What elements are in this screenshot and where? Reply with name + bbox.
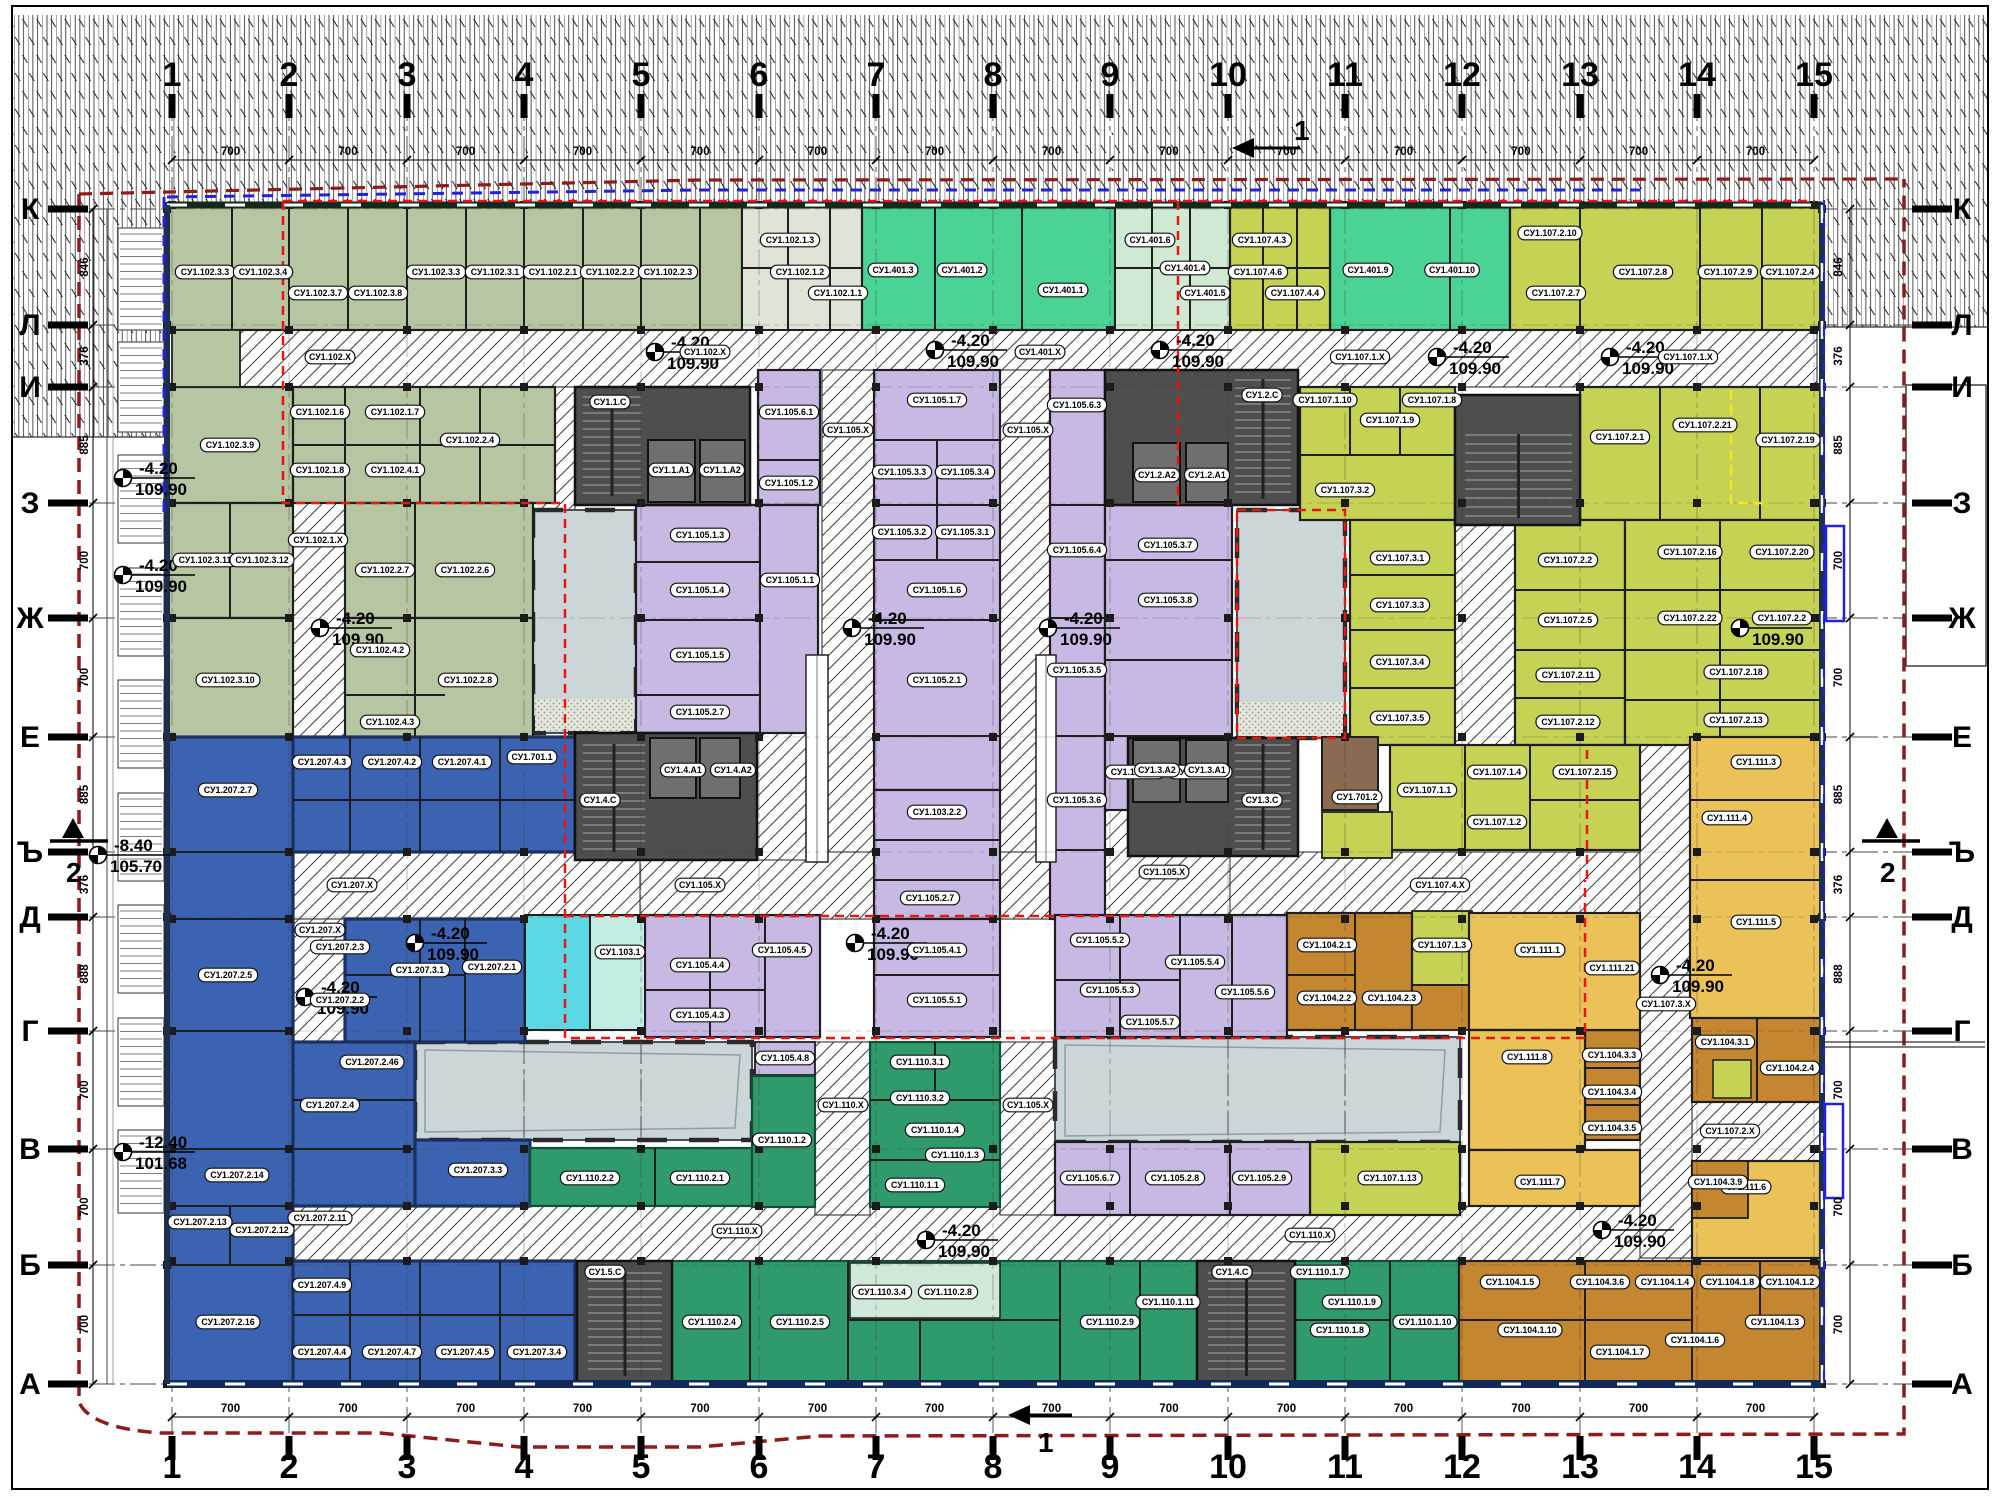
svg-text:СУ1.105.Х: СУ1.105.Х [679, 880, 721, 890]
svg-text:1: 1 [1294, 115, 1310, 146]
svg-text:СУ1.105.4.3: СУ1.105.4.3 [676, 1010, 725, 1020]
svg-text:-12.40: -12.40 [139, 1133, 187, 1152]
svg-text:8: 8 [984, 56, 1003, 94]
svg-text:СУ1.110.2.9: СУ1.110.2.9 [1086, 1317, 1134, 1327]
svg-text:СУ1.110.Х: СУ1.110.Х [822, 1100, 864, 1110]
svg-text:13: 13 [1561, 56, 1599, 94]
svg-text:Д: Д [1951, 901, 1972, 934]
svg-text:СУ1.102.3.11: СУ1.102.3.11 [179, 555, 232, 565]
svg-text:СУ1.107.2.8: СУ1.107.2.8 [1619, 267, 1668, 277]
svg-text:СУ1.105.Х: СУ1.105.Х [1007, 425, 1049, 435]
svg-text:И: И [1951, 371, 1973, 404]
svg-text:СУ1.102.3.1: СУ1.102.3.1 [471, 267, 520, 277]
svg-text:СУ1.1.А1: СУ1.1.А1 [652, 465, 690, 475]
svg-text:109.90: 109.90 [135, 480, 187, 499]
svg-text:СУ1.102.1.7: СУ1.102.1.7 [371, 407, 420, 417]
svg-text:СУ1.107.2.5: СУ1.107.2.5 [1544, 615, 1593, 625]
svg-text:700: 700 [808, 146, 827, 158]
svg-text:СУ1.105.2.8: СУ1.105.2.8 [1151, 1173, 1200, 1183]
svg-text:СУ1.2.А2: СУ1.2.А2 [1138, 470, 1176, 480]
svg-text:СУ1.105.5.4: СУ1.105.5.4 [1171, 957, 1220, 967]
svg-text:14: 14 [1678, 56, 1716, 94]
svg-text:700: 700 [1833, 1080, 1845, 1099]
svg-text:СУ1.207.2.46: СУ1.207.2.46 [345, 1057, 398, 1067]
svg-text:СУ1.207.2.3: СУ1.207.2.3 [316, 942, 365, 952]
svg-text:СУ1.102.4.2: СУ1.102.4.2 [356, 645, 405, 655]
svg-text:СУ1.102.1.8: СУ1.102.1.8 [296, 465, 345, 475]
svg-text:СУ1.207.4.4: СУ1.207.4.4 [298, 1347, 347, 1357]
svg-text:-4.20: -4.20 [942, 1221, 981, 1240]
svg-text:12: 12 [1443, 56, 1481, 94]
svg-text:СУ1.102.3.9: СУ1.102.3.9 [206, 440, 255, 450]
svg-text:СУ1.102.Х: СУ1.102.Х [684, 347, 726, 357]
svg-text:СУ1.107.2.2: СУ1.107.2.2 [1544, 555, 1593, 565]
svg-text:СУ1.110.Х: СУ1.110.Х [1289, 1230, 1331, 1240]
svg-text:700: 700 [79, 1315, 91, 1334]
svg-text:СУ1.107.3.1: СУ1.107.3.1 [1376, 553, 1425, 563]
svg-text:СУ1.107.2.1: СУ1.107.2.1 [1596, 432, 1645, 442]
svg-text:СУ1.110.2.8: СУ1.110.2.8 [924, 1287, 972, 1297]
svg-text:СУ1.401.6: СУ1.401.6 [1129, 235, 1170, 245]
svg-text:Б: Б [19, 1249, 41, 1282]
svg-text:СУ1.105.3.1: СУ1.105.3.1 [941, 527, 990, 537]
svg-text:СУ1.107.3.3: СУ1.107.3.3 [1376, 600, 1425, 610]
svg-text:СУ1.102.2.8: СУ1.102.2.8 [444, 675, 493, 685]
svg-text:СУ1.107.2.11: СУ1.107.2.11 [1542, 670, 1595, 680]
svg-text:СУ1.102.3.3: СУ1.102.3.3 [412, 267, 461, 277]
svg-text:846: 846 [1833, 257, 1845, 276]
svg-text:СУ1.207.3.4: СУ1.207.3.4 [513, 1347, 562, 1357]
svg-text:СУ1.105.6.3: СУ1.105.6.3 [1053, 400, 1102, 410]
svg-text:11: 11 [1327, 56, 1363, 94]
svg-text:СУ1.104.1.8: СУ1.104.1.8 [1706, 1277, 1755, 1287]
svg-text:15: 15 [1795, 56, 1833, 94]
svg-text:СУ1.110.1.4: СУ1.110.1.4 [911, 1125, 959, 1135]
svg-text:СУ1.107.3.Х: СУ1.107.3.Х [1641, 999, 1691, 1009]
svg-text:СУ1.102.3.3: СУ1.102.3.3 [181, 267, 230, 277]
svg-text:700: 700 [1159, 146, 1178, 158]
svg-text:СУ1.110.3.4: СУ1.110.3.4 [858, 1287, 906, 1297]
svg-text:2: 2 [66, 857, 82, 888]
svg-text:СУ1.107.1.Х: СУ1.107.1.Х [1663, 352, 1713, 362]
svg-text:700: 700 [79, 668, 91, 687]
svg-text:700: 700 [79, 1197, 91, 1216]
svg-text:СУ1.107.1.1: СУ1.107.1.1 [1403, 785, 1452, 795]
svg-text:700: 700 [1394, 146, 1413, 158]
svg-text:СУ1.104.1.7: СУ1.104.1.7 [1596, 1347, 1645, 1357]
svg-text:СУ1.102.1.2: СУ1.102.1.2 [776, 267, 825, 277]
svg-text:СУ1.102.3.10: СУ1.102.3.10 [201, 675, 254, 685]
svg-text:СУ1.107.2.18: СУ1.107.2.18 [1709, 667, 1762, 677]
svg-text:СУ1.107.4.6: СУ1.107.4.6 [1234, 267, 1283, 277]
svg-text:Д: Д [19, 901, 40, 934]
svg-text:376: 376 [1833, 875, 1845, 894]
svg-text:СУ1.207.4.5: СУ1.207.4.5 [441, 1347, 490, 1357]
svg-text:888: 888 [1833, 964, 1845, 984]
svg-text:109.90: 109.90 [1060, 630, 1112, 649]
svg-text:СУ1.110.2.5: СУ1.110.2.5 [776, 1317, 824, 1327]
svg-text:СУ1.105.5.3: СУ1.105.5.3 [1086, 985, 1135, 995]
svg-text:СУ1.107.2.20: СУ1.107.2.20 [1755, 547, 1808, 557]
svg-text:СУ1.105.5.7: СУ1.105.5.7 [1126, 1017, 1175, 1027]
svg-text:СУ1.110.1.1: СУ1.110.1.1 [891, 1180, 939, 1190]
svg-text:СУ1.105.3.8: СУ1.105.3.8 [1144, 595, 1193, 605]
svg-text:СУ1.104.3.9: СУ1.104.3.9 [1694, 1177, 1743, 1187]
svg-text:СУ1.207.4.1: СУ1.207.4.1 [438, 757, 487, 767]
svg-text:376: 376 [79, 346, 91, 365]
svg-text:СУ1.207.2.16: СУ1.207.2.16 [201, 1317, 254, 1327]
svg-text:СУ1.102.1.1: СУ1.102.1.1 [814, 288, 863, 298]
svg-text:СУ1.104.1.6: СУ1.104.1.6 [1671, 1335, 1720, 1345]
svg-text:СУ1.105.6.4: СУ1.105.6.4 [1053, 545, 1102, 555]
svg-text:СУ1.105.3.2: СУ1.105.3.2 [878, 527, 927, 537]
svg-text:СУ1.105.3.6: СУ1.105.3.6 [1053, 795, 1102, 805]
svg-text:10: 10 [1209, 56, 1247, 94]
svg-text:СУ1.110.1.3: СУ1.110.1.3 [931, 1150, 979, 1160]
svg-text:СУ1.105.1.1: СУ1.105.1.1 [766, 575, 815, 585]
svg-text:СУ1.110.2.1: СУ1.110.2.1 [676, 1173, 724, 1183]
svg-text:700: 700 [1042, 1403, 1061, 1415]
svg-text:376: 376 [1833, 346, 1845, 365]
svg-text:Ъ: Ъ [17, 836, 43, 869]
svg-text:885: 885 [79, 435, 91, 455]
svg-text:СУ1.102.1.3: СУ1.102.1.3 [766, 235, 815, 245]
svg-text:СУ1.104.3.5: СУ1.104.3.5 [1588, 1123, 1637, 1133]
svg-text:700: 700 [79, 551, 91, 570]
svg-text:СУ1.207.4.9: СУ1.207.4.9 [298, 1280, 347, 1290]
svg-text:СУ1.3.А1: СУ1.3.А1 [1188, 765, 1226, 775]
svg-text:СУ1.107.2.9: СУ1.107.2.9 [1704, 267, 1753, 277]
svg-text:К: К [1953, 193, 1972, 226]
svg-text:СУ1.107.2.15: СУ1.107.2.15 [1558, 767, 1611, 777]
svg-text:888: 888 [79, 964, 91, 984]
svg-text:700: 700 [690, 1403, 709, 1415]
svg-text:СУ1.105.3.5: СУ1.105.3.5 [1053, 665, 1102, 675]
svg-text:СУ1.701.2: СУ1.701.2 [1336, 792, 1377, 802]
svg-text:СУ1.102.2.6: СУ1.102.2.6 [441, 565, 490, 575]
svg-text:700: 700 [338, 1403, 357, 1415]
svg-text:СУ1.104.3.3: СУ1.104.3.3 [1588, 1050, 1637, 1060]
svg-text:Ъ: Ъ [1949, 836, 1975, 869]
svg-text:СУ1.105.2.7: СУ1.105.2.7 [906, 893, 955, 903]
svg-text:СУ1.105.4.1: СУ1.105.4.1 [913, 945, 962, 955]
svg-text:СУ1.102.1.6: СУ1.102.1.6 [296, 407, 345, 417]
svg-text:Ж: Ж [15, 602, 44, 635]
svg-text:-4.20: -4.20 [139, 556, 178, 575]
svg-text:-4.20: -4.20 [1064, 609, 1103, 628]
svg-text:СУ1.102.Х: СУ1.102.Х [309, 352, 351, 362]
svg-text:СУ1.401.10: СУ1.401.10 [1429, 265, 1475, 275]
svg-text:СУ1.207.4.7: СУ1.207.4.7 [368, 1347, 417, 1357]
svg-text:700: 700 [79, 1080, 91, 1099]
svg-text:СУ1.104.1.4: СУ1.104.1.4 [1641, 1277, 1690, 1287]
svg-text:700: 700 [456, 146, 475, 158]
svg-text:СУ1.110.1.7: СУ1.110.1.7 [1296, 1267, 1344, 1277]
svg-text:СУ1.107.4.Х: СУ1.107.4.Х [1415, 880, 1465, 890]
svg-text:СУ1.207.4.3: СУ1.207.4.3 [298, 757, 347, 767]
svg-text:885: 885 [1833, 435, 1845, 455]
svg-text:700: 700 [1833, 551, 1845, 570]
svg-text:700: 700 [338, 146, 357, 158]
svg-text:СУ1.107.1.13: СУ1.107.1.13 [1363, 1173, 1416, 1183]
svg-text:СУ1.102.1.Х: СУ1.102.1.Х [293, 535, 343, 545]
svg-text:СУ1.104.3.6: СУ1.104.3.6 [1576, 1277, 1625, 1287]
svg-text:Е: Е [1952, 721, 1972, 754]
svg-text:109.90: 109.90 [1672, 977, 1724, 996]
svg-text:-4.20: -4.20 [1176, 331, 1215, 350]
svg-text:СУ1.111.1: СУ1.111.1 [1520, 945, 1560, 955]
svg-text:109.90: 109.90 [938, 1242, 990, 1261]
svg-text:СУ1.105.5.1: СУ1.105.5.1 [913, 995, 962, 1005]
svg-text:1: 1 [163, 56, 182, 94]
svg-text:СУ1.102.3.4: СУ1.102.3.4 [239, 267, 288, 277]
svg-text:СУ1.105.6.7: СУ1.105.6.7 [1066, 1173, 1115, 1183]
svg-text:СУ1.401.2: СУ1.401.2 [941, 265, 982, 275]
svg-text:СУ1.107.2.2: СУ1.107.2.2 [1758, 613, 1807, 623]
svg-text:СУ1.105.Х: СУ1.105.Х [1143, 867, 1185, 877]
svg-text:СУ1.104.3.1: СУ1.104.3.1 [1701, 1037, 1750, 1047]
svg-text:СУ1.107.1.2: СУ1.107.1.2 [1473, 817, 1522, 827]
svg-text:СУ1.102.2.2: СУ1.102.2.2 [586, 267, 635, 277]
svg-text:СУ1.111.3: СУ1.111.3 [1736, 757, 1776, 767]
svg-text:СУ1.207.Х: СУ1.207.Х [331, 880, 373, 890]
svg-text:СУ1.401.3: СУ1.401.3 [872, 265, 913, 275]
svg-text:СУ1.107.1.8: СУ1.107.1.8 [1408, 395, 1457, 405]
svg-text:СУ1.1.С: СУ1.1.С [594, 397, 627, 407]
svg-text:СУ1.105.1.6: СУ1.105.1.6 [913, 585, 962, 595]
svg-text:-4.20: -4.20 [1618, 1211, 1657, 1230]
svg-text:СУ1.4.А2: СУ1.4.А2 [714, 765, 752, 775]
svg-text:700: 700 [1511, 1403, 1530, 1415]
svg-text:СУ1.110.1.11: СУ1.110.1.11 [1142, 1297, 1194, 1307]
svg-text:700: 700 [1042, 146, 1061, 158]
svg-text:846: 846 [79, 257, 91, 276]
svg-text:СУ1.2.С: СУ1.2.С [1246, 390, 1279, 400]
svg-text:СУ1.107.3.2: СУ1.107.3.2 [1321, 485, 1370, 495]
svg-text:СУ1.110.1.8: СУ1.110.1.8 [1316, 1325, 1364, 1335]
svg-text:СУ1.107.1.9: СУ1.107.1.9 [1366, 415, 1415, 425]
svg-text:СУ1.105.Х: СУ1.105.Х [1007, 1100, 1049, 1110]
svg-text:СУ1.105.6.1: СУ1.105.6.1 [765, 407, 814, 417]
svg-text:700: 700 [925, 146, 944, 158]
svg-text:СУ1.107.2.12: СУ1.107.2.12 [1541, 717, 1594, 727]
svg-text:СУ1.110.2.4: СУ1.110.2.4 [688, 1317, 736, 1327]
svg-text:700: 700 [1629, 146, 1648, 158]
svg-text:СУ1.207.2.7: СУ1.207.2.7 [204, 785, 253, 795]
svg-text:СУ1.107.3.4: СУ1.107.3.4 [1376, 657, 1425, 667]
svg-text:СУ1.105.5.6: СУ1.105.5.6 [1221, 987, 1270, 997]
svg-text:СУ1.104.2.4: СУ1.104.2.4 [1766, 1063, 1815, 1073]
svg-text:СУ1.105.Х: СУ1.105.Х [827, 425, 869, 435]
svg-text:СУ1.110.1.2: СУ1.110.1.2 [758, 1135, 806, 1145]
svg-text:СУ1.207.3.1: СУ1.207.3.1 [396, 965, 445, 975]
svg-text:СУ1.107.3.5: СУ1.107.3.5 [1376, 713, 1425, 723]
svg-text:СУ1.111.8: СУ1.111.8 [1507, 1052, 1547, 1062]
svg-text:-4.20: -4.20 [139, 459, 178, 478]
svg-text:СУ1.105.4.4: СУ1.105.4.4 [676, 960, 725, 970]
svg-text:К: К [21, 193, 40, 226]
svg-text:109.90: 109.90 [1614, 1232, 1666, 1251]
svg-text:-4.20: -4.20 [1676, 956, 1715, 975]
svg-text:700: 700 [221, 146, 240, 158]
svg-text:СУ1.107.1.Х: СУ1.107.1.Х [1335, 352, 1385, 362]
svg-text:7: 7 [867, 56, 886, 94]
svg-text:СУ1.104.2.1: СУ1.104.2.1 [1303, 940, 1352, 950]
svg-text:СУ1.3.С: СУ1.3.С [1246, 795, 1279, 805]
svg-text:СУ1.207.2.14: СУ1.207.2.14 [210, 1170, 263, 1180]
svg-text:-4.20: -4.20 [431, 924, 470, 943]
svg-text:СУ1.105.4.5: СУ1.105.4.5 [758, 945, 807, 955]
svg-text:4: 4 [515, 56, 534, 94]
svg-text:СУ1.107.1.3: СУ1.107.1.3 [1418, 940, 1467, 950]
svg-text:СУ1.107.2.10: СУ1.107.2.10 [1523, 228, 1576, 238]
svg-text:2: 2 [1880, 857, 1896, 888]
svg-text:109.90: 109.90 [1752, 630, 1804, 649]
svg-text:А: А [1951, 1368, 1973, 1401]
svg-text:2: 2 [280, 56, 299, 94]
svg-text:СУ1.107.4.3: СУ1.107.4.3 [1238, 235, 1287, 245]
svg-text:СУ1.401.4: СУ1.401.4 [1164, 263, 1205, 273]
svg-text:СУ1.102.3.8: СУ1.102.3.8 [354, 288, 403, 298]
svg-text:5: 5 [632, 56, 651, 94]
svg-text:СУ1.104.2.2: СУ1.104.2.2 [1303, 993, 1352, 1003]
svg-text:СУ1.102.3.7: СУ1.102.3.7 [294, 288, 343, 298]
svg-text:-4.20: -4.20 [871, 924, 910, 943]
svg-text:СУ1.110.2.2: СУ1.110.2.2 [566, 1173, 614, 1183]
svg-text:СУ1.111.21: СУ1.111.21 [1590, 963, 1635, 973]
svg-text:СУ1.107.1.4: СУ1.107.1.4 [1473, 767, 1522, 777]
svg-text:СУ1.111.4: СУ1.111.4 [1707, 813, 1747, 823]
svg-text:109.90: 109.90 [1172, 352, 1224, 371]
svg-text:СУ1.107.2.22: СУ1.107.2.22 [1663, 613, 1716, 623]
svg-text:СУ1.401.1: СУ1.401.1 [1042, 285, 1083, 295]
svg-text:700: 700 [1629, 1403, 1648, 1415]
svg-text:СУ1.102.2.7: СУ1.102.2.7 [361, 565, 410, 575]
svg-text:700: 700 [1746, 1403, 1765, 1415]
svg-text:СУ1.207.Х: СУ1.207.Х [299, 925, 341, 935]
svg-text:-4.20: -4.20 [1453, 338, 1492, 357]
svg-text:700: 700 [1833, 1197, 1845, 1216]
svg-text:СУ1.105.1.4: СУ1.105.1.4 [676, 585, 725, 595]
svg-text:СУ1.102.3.12: СУ1.102.3.12 [235, 555, 288, 565]
svg-text:СУ1.207.2.11: СУ1.207.2.11 [294, 1213, 347, 1223]
svg-text:СУ1.102.4.3: СУ1.102.4.3 [366, 717, 415, 727]
svg-text:СУ1.401.9: СУ1.401.9 [1347, 265, 1388, 275]
svg-text:700: 700 [1511, 146, 1530, 158]
svg-text:СУ1.105.5.2: СУ1.105.5.2 [1076, 935, 1125, 945]
svg-text:109.90: 109.90 [1449, 359, 1501, 378]
svg-text:СУ1.104.1.2: СУ1.104.1.2 [1766, 1277, 1815, 1287]
svg-text:СУ1.207.2.5: СУ1.207.2.5 [204, 970, 253, 980]
svg-text:-8.40: -8.40 [114, 836, 153, 855]
svg-text:СУ1.401.Х: СУ1.401.Х [1019, 347, 1061, 357]
svg-text:СУ1.107.2.21: СУ1.107.2.21 [1678, 420, 1731, 430]
svg-text:109.90: 109.90 [864, 630, 916, 649]
svg-text:885: 885 [79, 784, 91, 804]
svg-text:СУ1.102.4.1: СУ1.102.4.1 [371, 465, 420, 475]
svg-text:СУ1.207.2.13: СУ1.207.2.13 [173, 1217, 226, 1227]
svg-text:СУ1.2.А1: СУ1.2.А1 [1188, 470, 1226, 480]
svg-text:СУ1.107.2.4: СУ1.107.2.4 [1766, 267, 1815, 277]
svg-text:СУ1.107.2.19: СУ1.107.2.19 [1761, 435, 1814, 445]
svg-text:Л: Л [19, 309, 40, 342]
svg-text:СУ1.105.2.9: СУ1.105.2.9 [1238, 1173, 1287, 1183]
svg-text:СУ1.107.2.7: СУ1.107.2.7 [1532, 288, 1581, 298]
svg-text:Е: Е [20, 721, 40, 754]
svg-text:1: 1 [1038, 1427, 1054, 1458]
svg-text:700: 700 [1159, 1403, 1178, 1415]
svg-text:СУ1.105.1.7: СУ1.105.1.7 [913, 395, 962, 405]
svg-text:СУ1.207.4.2: СУ1.207.4.2 [368, 757, 417, 767]
svg-text:СУ1.102.2.4: СУ1.102.2.4 [446, 435, 495, 445]
svg-text:109.90: 109.90 [947, 352, 999, 371]
svg-text:СУ1.1.А2: СУ1.1.А2 [703, 465, 741, 475]
svg-text:СУ1.5.С: СУ1.5.С [589, 1267, 622, 1277]
svg-text:СУ1.3.А2: СУ1.3.А2 [1138, 765, 1176, 775]
svg-text:700: 700 [808, 1403, 827, 1415]
svg-text:Г: Г [1953, 1015, 1970, 1048]
svg-text:700: 700 [925, 1403, 944, 1415]
svg-text:3: 3 [398, 56, 417, 94]
svg-text:700: 700 [221, 1403, 240, 1415]
svg-text:СУ1.105.1.5: СУ1.105.1.5 [676, 650, 725, 660]
svg-text:СУ1.207.2.4: СУ1.207.2.4 [306, 1100, 355, 1110]
svg-text:СУ1.102.2.3: СУ1.102.2.3 [644, 267, 693, 277]
svg-text:700: 700 [573, 146, 592, 158]
svg-text:СУ1.105.3.7: СУ1.105.3.7 [1144, 540, 1193, 550]
svg-text:700: 700 [1746, 146, 1765, 158]
svg-text:700: 700 [456, 1403, 475, 1415]
svg-text:СУ1.207.2.1: СУ1.207.2.1 [468, 962, 517, 972]
svg-text:885: 885 [1833, 784, 1845, 804]
svg-text:700: 700 [573, 1403, 592, 1415]
svg-text:-4.20: -4.20 [336, 609, 375, 628]
svg-text:-4.20: -4.20 [868, 609, 907, 628]
svg-text:700: 700 [1833, 1315, 1845, 1334]
svg-text:СУ1.105.3.4: СУ1.105.3.4 [941, 467, 990, 477]
svg-text:Г: Г [21, 1015, 38, 1048]
svg-text:9: 9 [1101, 56, 1120, 94]
svg-text:109.90: 109.90 [135, 577, 187, 596]
svg-text:СУ1.110.Х: СУ1.110.Х [716, 1226, 758, 1236]
svg-text:СУ1.102.2.1: СУ1.102.2.1 [529, 267, 578, 277]
svg-text:СУ1.104.1.10: СУ1.104.1.10 [1503, 1325, 1556, 1335]
svg-text:СУ1.401.5: СУ1.401.5 [1184, 288, 1225, 298]
svg-text:З: З [1953, 487, 1972, 520]
svg-text:СУ1.107.2.16: СУ1.107.2.16 [1663, 547, 1716, 557]
svg-text:СУ1.103.1: СУ1.103.1 [599, 947, 640, 957]
svg-text:СУ1.107.2.13: СУ1.107.2.13 [1709, 715, 1762, 725]
svg-text:А: А [19, 1368, 41, 1401]
svg-text:СУ1.110.1.10: СУ1.110.1.10 [1399, 1317, 1452, 1327]
svg-text:СУ1.104.1.3: СУ1.104.1.3 [1751, 1317, 1800, 1327]
svg-text:СУ1.107.4.4: СУ1.107.4.4 [1271, 288, 1320, 298]
svg-text:СУ1.207.2.12: СУ1.207.2.12 [235, 1225, 288, 1235]
svg-text:СУ1.105.3.3: СУ1.105.3.3 [878, 467, 927, 477]
svg-text:СУ1.103.2.2: СУ1.103.2.2 [913, 807, 962, 817]
svg-text:700: 700 [690, 146, 709, 158]
svg-text:Б: Б [1951, 1249, 1973, 1282]
svg-text:105.70: 105.70 [110, 857, 162, 876]
svg-text:СУ1.107.1.10: СУ1.107.1.10 [1298, 395, 1351, 405]
svg-text:СУ1.110.1.9: СУ1.110.1.9 [1328, 1297, 1376, 1307]
svg-text:СУ1.104.3.4: СУ1.104.3.4 [1588, 1087, 1637, 1097]
svg-text:СУ1.207.2.2: СУ1.207.2.2 [316, 995, 365, 1005]
svg-text:СУ1.104.1.5: СУ1.104.1.5 [1486, 1277, 1535, 1287]
svg-text:СУ1.4.С: СУ1.4.С [1216, 1267, 1249, 1277]
svg-text:СУ1.111.5: СУ1.111.5 [1736, 917, 1776, 927]
svg-text:СУ1.110.3.1: СУ1.110.3.1 [896, 1057, 944, 1067]
